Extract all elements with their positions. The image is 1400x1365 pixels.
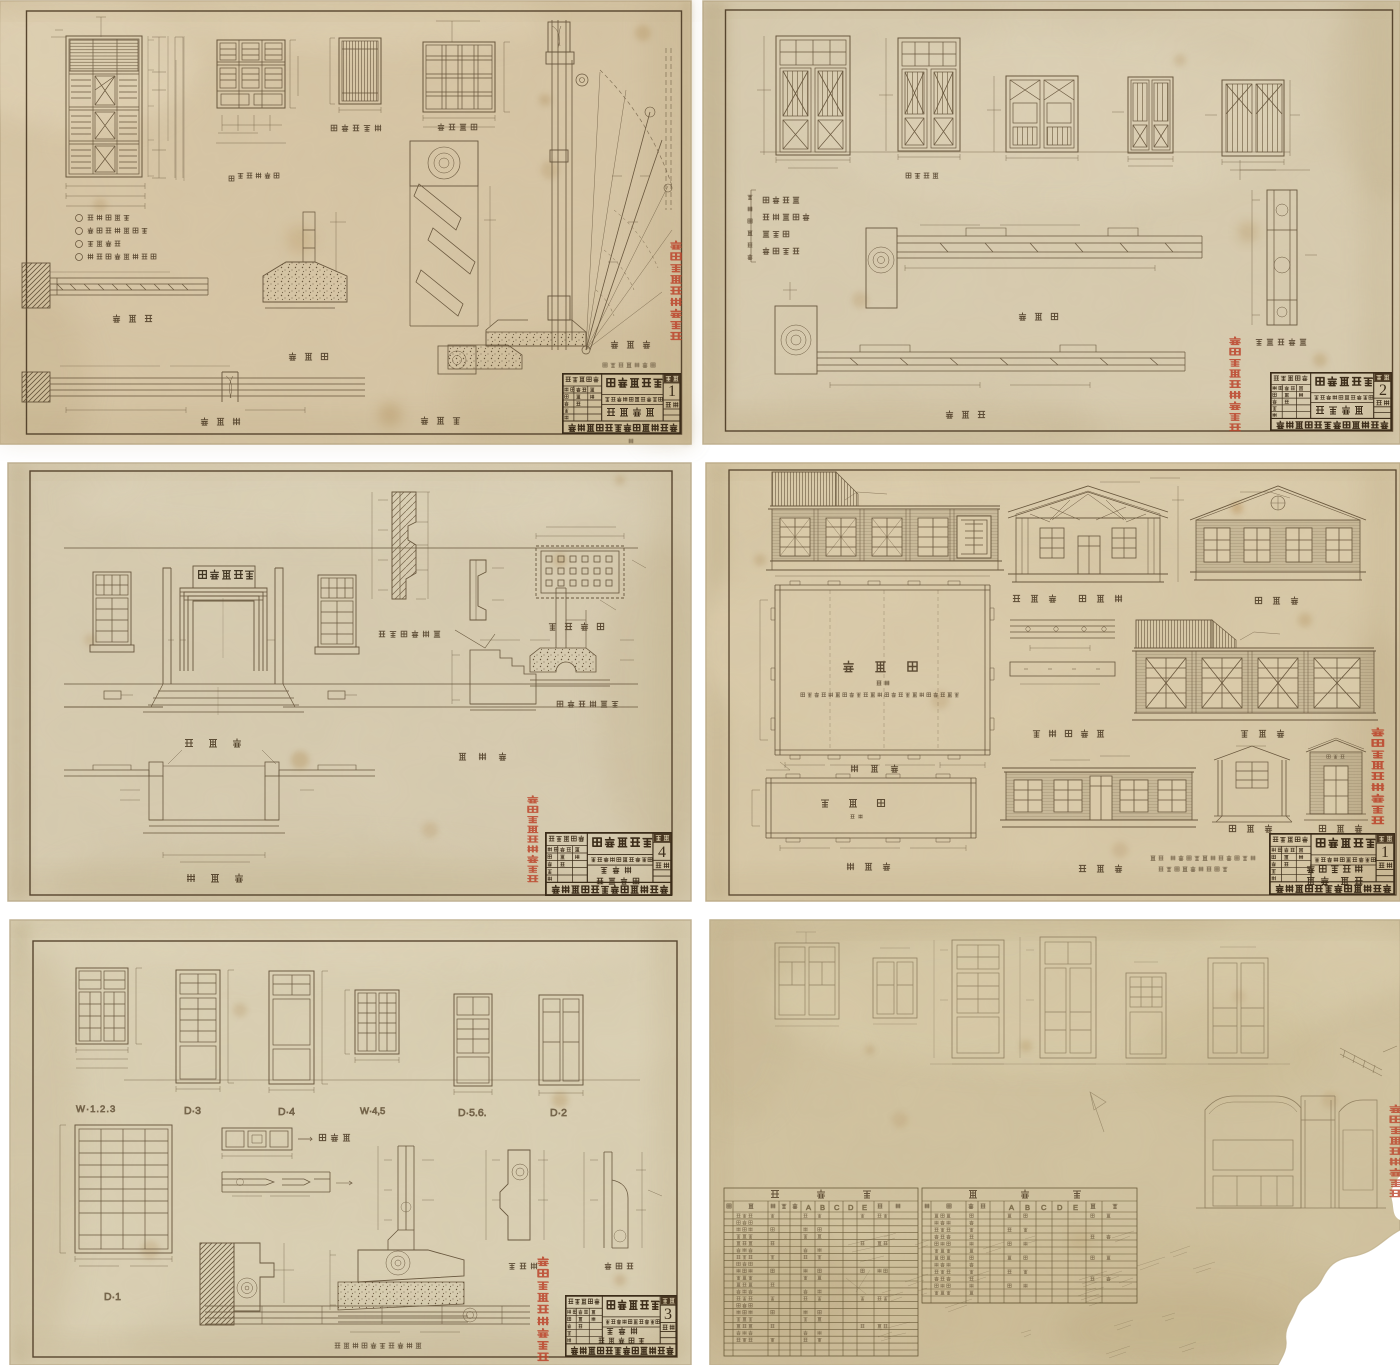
- svg-text:D·5.6.: D·5.6.: [458, 1107, 487, 1119]
- svg-text:2: 2: [1379, 382, 1387, 399]
- svg-text:B: B: [1025, 1203, 1030, 1212]
- svg-text:W·1.2.3: W·1.2.3: [76, 1104, 116, 1115]
- svg-text:E: E: [1073, 1203, 1078, 1212]
- svg-text:B: B: [820, 1203, 825, 1212]
- svg-text:C: C: [834, 1203, 840, 1212]
- svg-text:D·2: D·2: [550, 1107, 567, 1119]
- svg-text:D·1: D·1: [104, 1291, 121, 1303]
- svg-text:A: A: [1009, 1203, 1014, 1212]
- svg-text:E: E: [862, 1203, 867, 1212]
- svg-text:3: 3: [664, 1306, 672, 1323]
- svg-text:4: 4: [658, 844, 666, 861]
- svg-text:C: C: [1041, 1203, 1047, 1212]
- svg-text:W·4,5: W·4,5: [360, 1106, 385, 1117]
- svg-text:A: A: [806, 1203, 811, 1212]
- svg-text:D: D: [1057, 1203, 1063, 1212]
- svg-text:D: D: [848, 1203, 854, 1212]
- svg-text:1: 1: [1381, 844, 1389, 861]
- svg-text:D·4: D·4: [278, 1106, 295, 1118]
- svg-text:D·3: D·3: [184, 1105, 201, 1117]
- svg-text:1: 1: [668, 383, 676, 400]
